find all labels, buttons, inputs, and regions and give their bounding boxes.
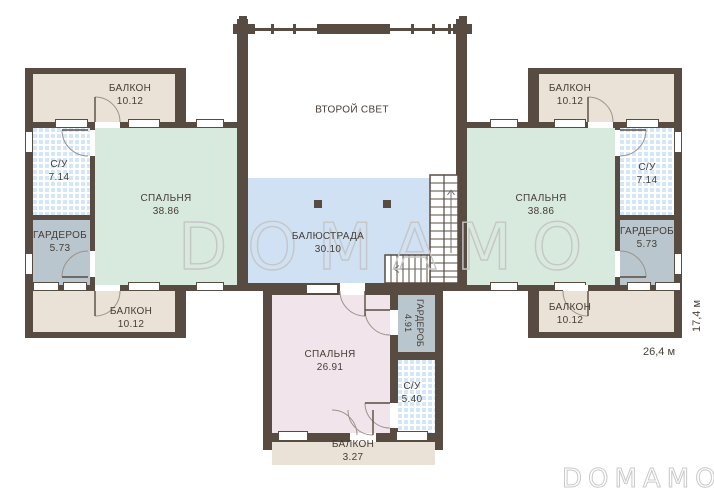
- room-label-bedroom-bottom: СПАЛЬНЯ 26.91: [305, 348, 356, 374]
- room-name: СПАЛЬНЯ: [305, 348, 356, 361]
- room-name: БАЛКОН: [109, 82, 151, 95]
- room-name: БАЛКОН: [110, 305, 152, 318]
- room-name: СПАЛЬНЯ: [516, 192, 567, 205]
- balustrade-columns: [314, 200, 391, 208]
- room-name: БАЛКОН: [332, 438, 374, 451]
- room-area: 5.40: [402, 393, 423, 406]
- room-label-balcony-bottom-center: БАЛКОН 3.27: [332, 438, 374, 464]
- room-name: ГАРДЕРОБ: [620, 225, 674, 238]
- room-label-bathroom-left: С/У 7.14: [49, 158, 70, 184]
- room-area: 10.12: [110, 318, 152, 331]
- room-name: С/У: [49, 158, 70, 171]
- watermark-corner: DOMAMO: [562, 464, 714, 494]
- room-area: 3.27: [332, 451, 374, 464]
- room-name: БАЛКОН: [549, 82, 591, 95]
- dimension-height: 17,4 м: [691, 300, 703, 332]
- room-name: СПАЛЬНЯ: [141, 192, 192, 205]
- room-label-wardrobe-bottom: ГАРДЕРОБ 4.91: [402, 299, 426, 347]
- room-name: С/У: [402, 380, 423, 393]
- room-name: ГАРДЕРОБ: [414, 299, 426, 347]
- room-label-balustrade: БАЛЮСТРАДА 30.10: [292, 230, 364, 256]
- room-area: 38.86: [141, 205, 192, 218]
- room-area: 26.91: [305, 361, 356, 374]
- room-area: 10.12: [549, 314, 591, 327]
- room-name: С/У: [637, 161, 658, 174]
- room-area: 10.12: [549, 95, 591, 108]
- room-area: 38.86: [516, 205, 567, 218]
- floor-plan: DOMAMO DOMAMO БАЛКОН 10.12 С/У 7.14 ГАРД…: [0, 0, 714, 498]
- room-label-bathroom-bottom: С/У 5.40: [402, 380, 423, 406]
- room-area: 30.10: [292, 243, 364, 256]
- room-area: 10.12: [109, 95, 151, 108]
- watermark-center: DOMAMO: [178, 220, 602, 276]
- room-label-balcony-top-right: БАЛКОН 10.12: [549, 82, 591, 108]
- room-label-balcony-top-left: БАЛКОН 10.12: [109, 82, 151, 108]
- room-name: БАЛЮСТРАДА: [292, 230, 364, 243]
- room-label-second-light: ВТОРОЙ СВЕТ: [315, 104, 389, 117]
- room-label-bathroom-right: С/У 7.14: [637, 161, 658, 187]
- room-area: 5.73: [33, 242, 87, 255]
- room-label-balcony-bottom-right: БАЛКОН 10.12: [549, 301, 591, 327]
- room-area: 5.73: [620, 238, 674, 251]
- room-label-wardrobe-right: ГАРДЕРОБ 5.73: [620, 225, 674, 251]
- room-label-bedroom-right: СПАЛЬНЯ 38.86: [516, 192, 567, 218]
- room-label-wardrobe-left: ГАРДЕРОБ 5.73: [33, 229, 87, 255]
- room-label-balcony-bottom-left: БАЛКОН 10.12: [110, 305, 152, 331]
- room-name: ГАРДЕРОБ: [33, 229, 87, 242]
- room-area: 7.14: [637, 174, 658, 187]
- room-area: 4.91: [402, 299, 414, 347]
- room-area: 7.14: [49, 171, 70, 184]
- room-name: БАЛКОН: [549, 301, 591, 314]
- room-label-bedroom-left: СПАЛЬНЯ 38.86: [141, 192, 192, 218]
- dimension-width: 26,4 м: [643, 346, 675, 358]
- room-name: ВТОРОЙ СВЕТ: [315, 104, 389, 117]
